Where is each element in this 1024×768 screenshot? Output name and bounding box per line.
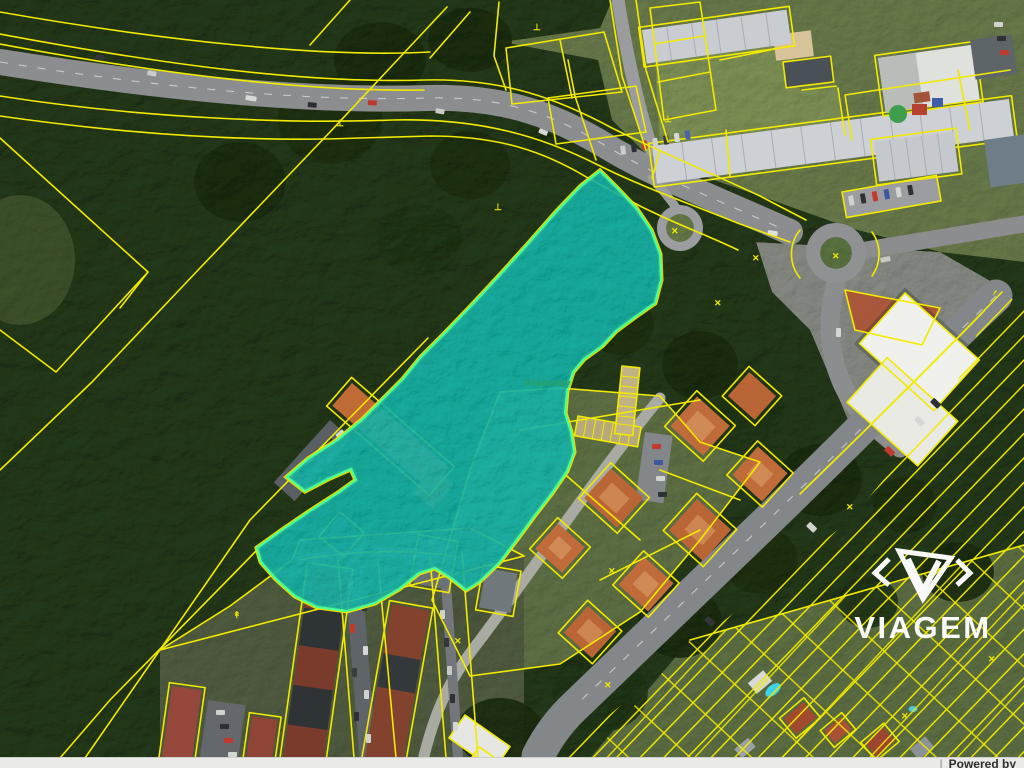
svg-text:✕: ✕ xyxy=(608,566,616,576)
map-screenshot: ⊥ ⊥ ↟ ✕ ✕ ✕ ⊥ ✕ ✕ ✕ ⊥ ✕ ✕ ✕ ✕ ⊥ Kladruby xyxy=(0,0,1024,768)
powered-by-label: Powered by xyxy=(949,757,1016,768)
svg-text:✕: ✕ xyxy=(604,680,612,690)
kindergarten-roof xyxy=(889,105,907,123)
svg-text:✕: ✕ xyxy=(988,654,996,664)
attribution-bar: |Powered by xyxy=(0,757,1024,768)
footer-separator: | xyxy=(940,757,943,768)
svg-text:⊥: ⊥ xyxy=(336,118,344,128)
brand-wordmark: VIAGEM xyxy=(854,610,991,645)
svg-text:⊥: ⊥ xyxy=(494,202,502,212)
aerial-map: ⊥ ⊥ ↟ ✕ ✕ ✕ ⊥ ✕ ✕ ✕ ⊥ ✕ ✕ ✕ ✕ ⊥ Kladruby xyxy=(0,0,1024,758)
svg-text:⊥: ⊥ xyxy=(664,114,672,124)
building-top-right xyxy=(875,41,984,115)
svg-text:↟: ↟ xyxy=(233,610,241,620)
svg-text:⊥: ⊥ xyxy=(533,22,541,32)
svg-text:✕: ✕ xyxy=(832,251,840,261)
map-canvas[interactable]: ⊥ ⊥ ↟ ✕ ✕ ✕ ⊥ ✕ ✕ ✕ ⊥ ✕ ✕ ✕ ✕ ⊥ Kladruby xyxy=(0,0,1024,758)
svg-text:✕: ✕ xyxy=(846,502,854,512)
svg-text:✕: ✕ xyxy=(671,226,679,236)
parcel-label: Kladruby xyxy=(525,378,571,389)
svg-text:✕: ✕ xyxy=(901,711,909,721)
svg-text:✕: ✕ xyxy=(714,298,722,308)
svg-text:✕: ✕ xyxy=(454,636,462,646)
svg-text:✕: ✕ xyxy=(752,253,760,263)
